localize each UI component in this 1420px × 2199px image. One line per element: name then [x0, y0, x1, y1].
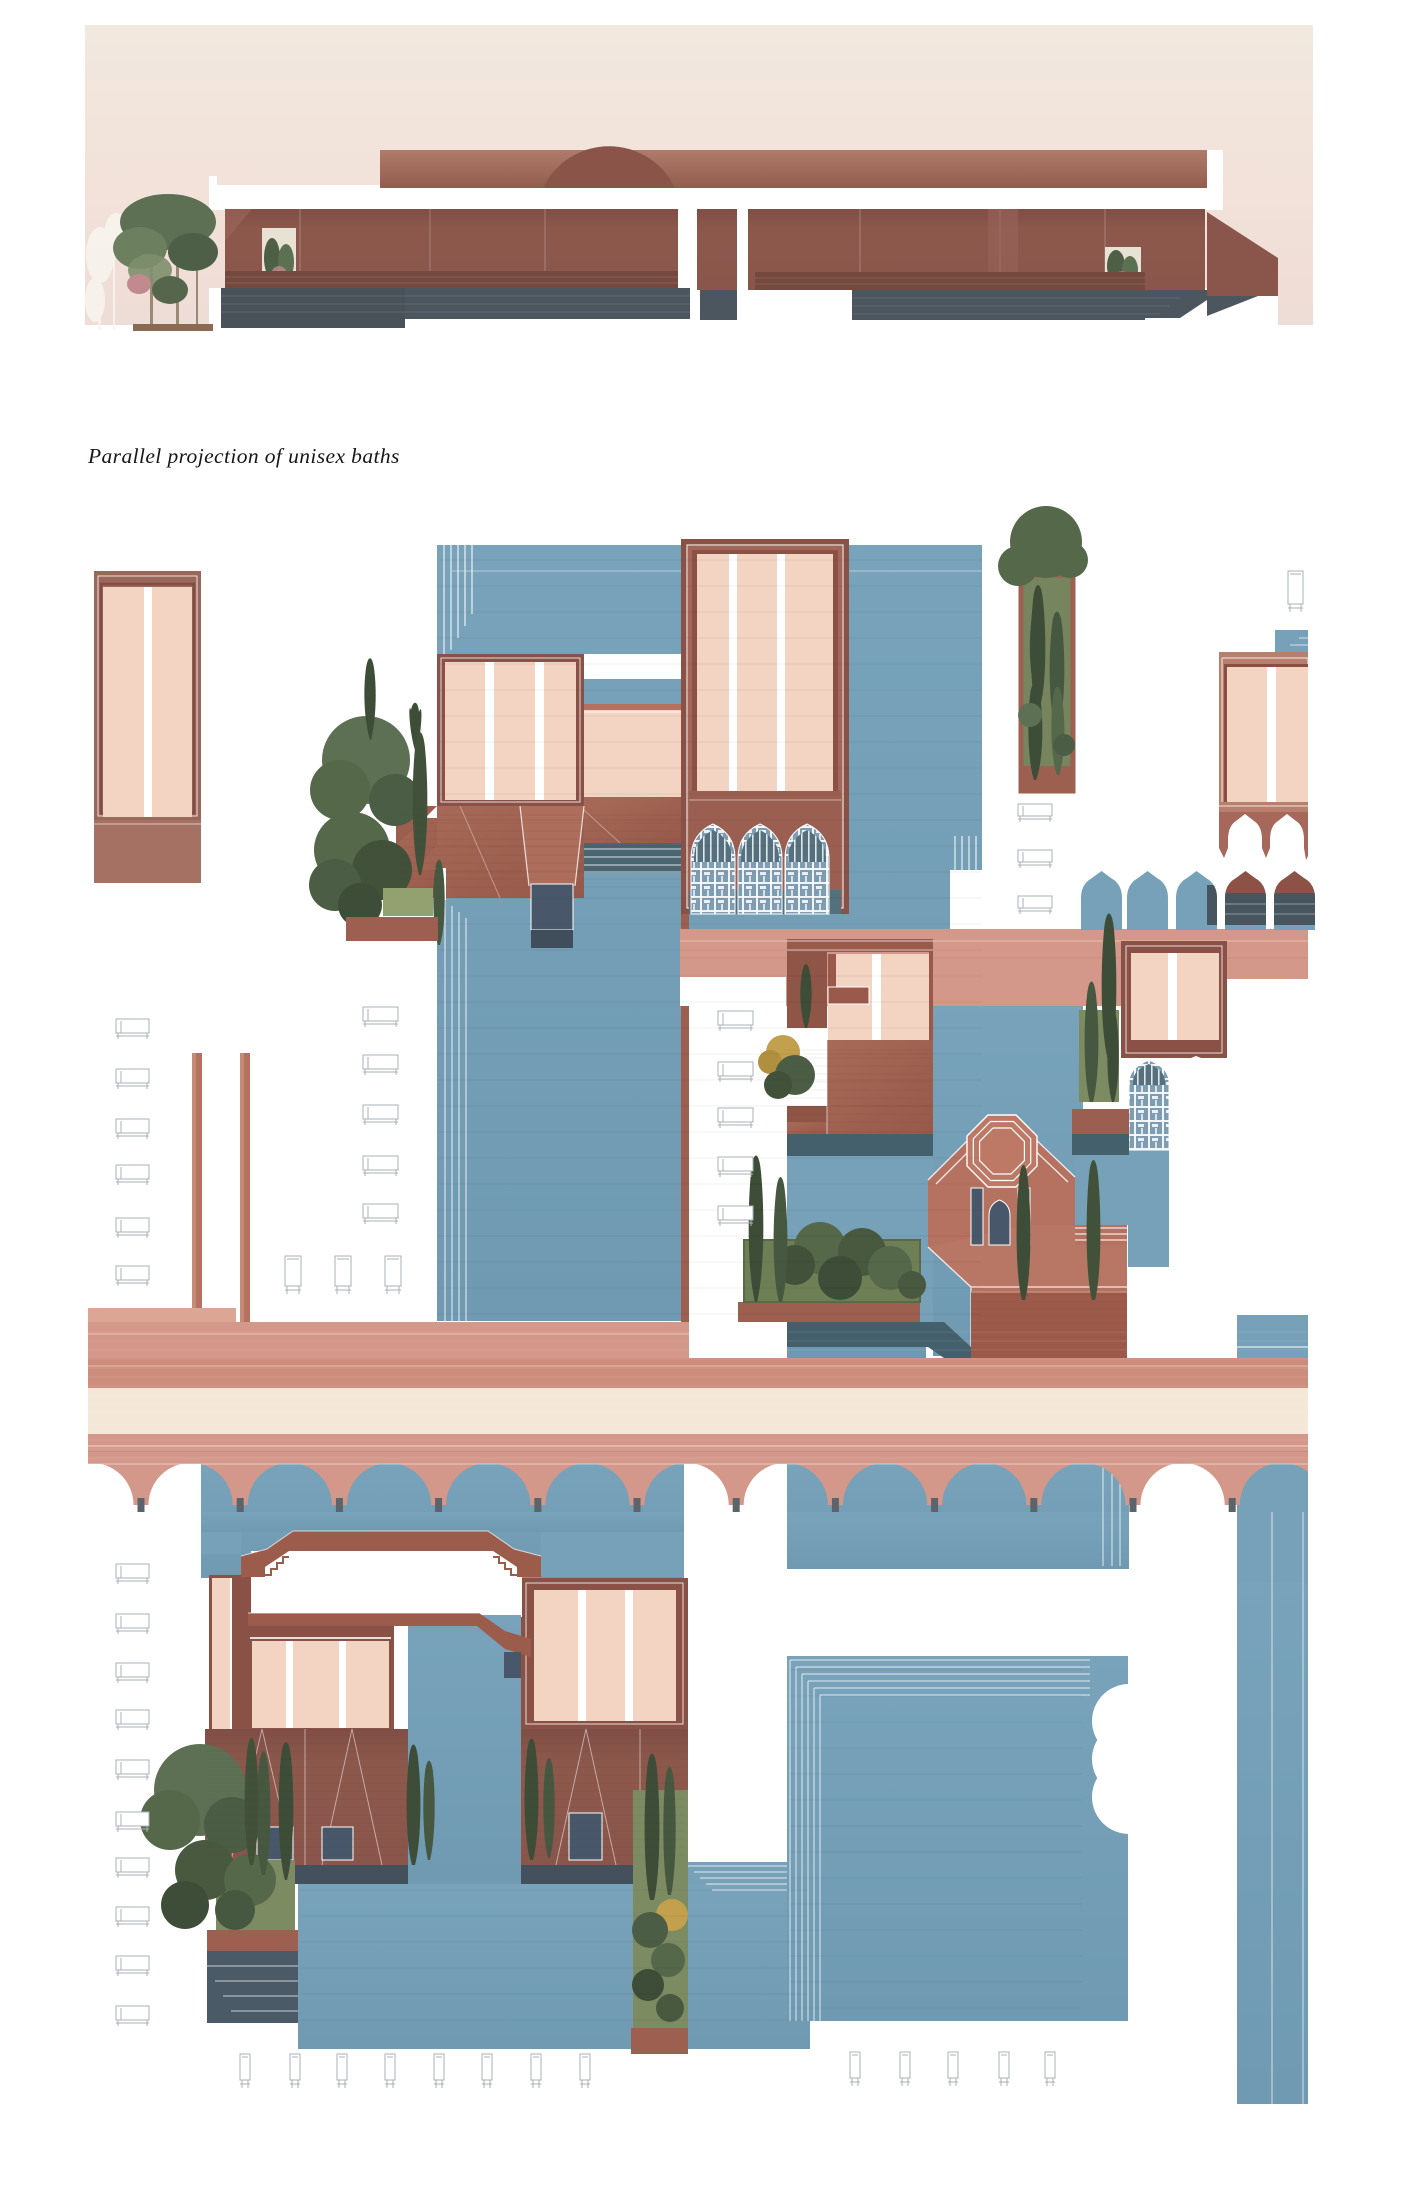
svg-text:Parallel projection of unisex: Parallel projection of unisex baths [87, 444, 400, 468]
